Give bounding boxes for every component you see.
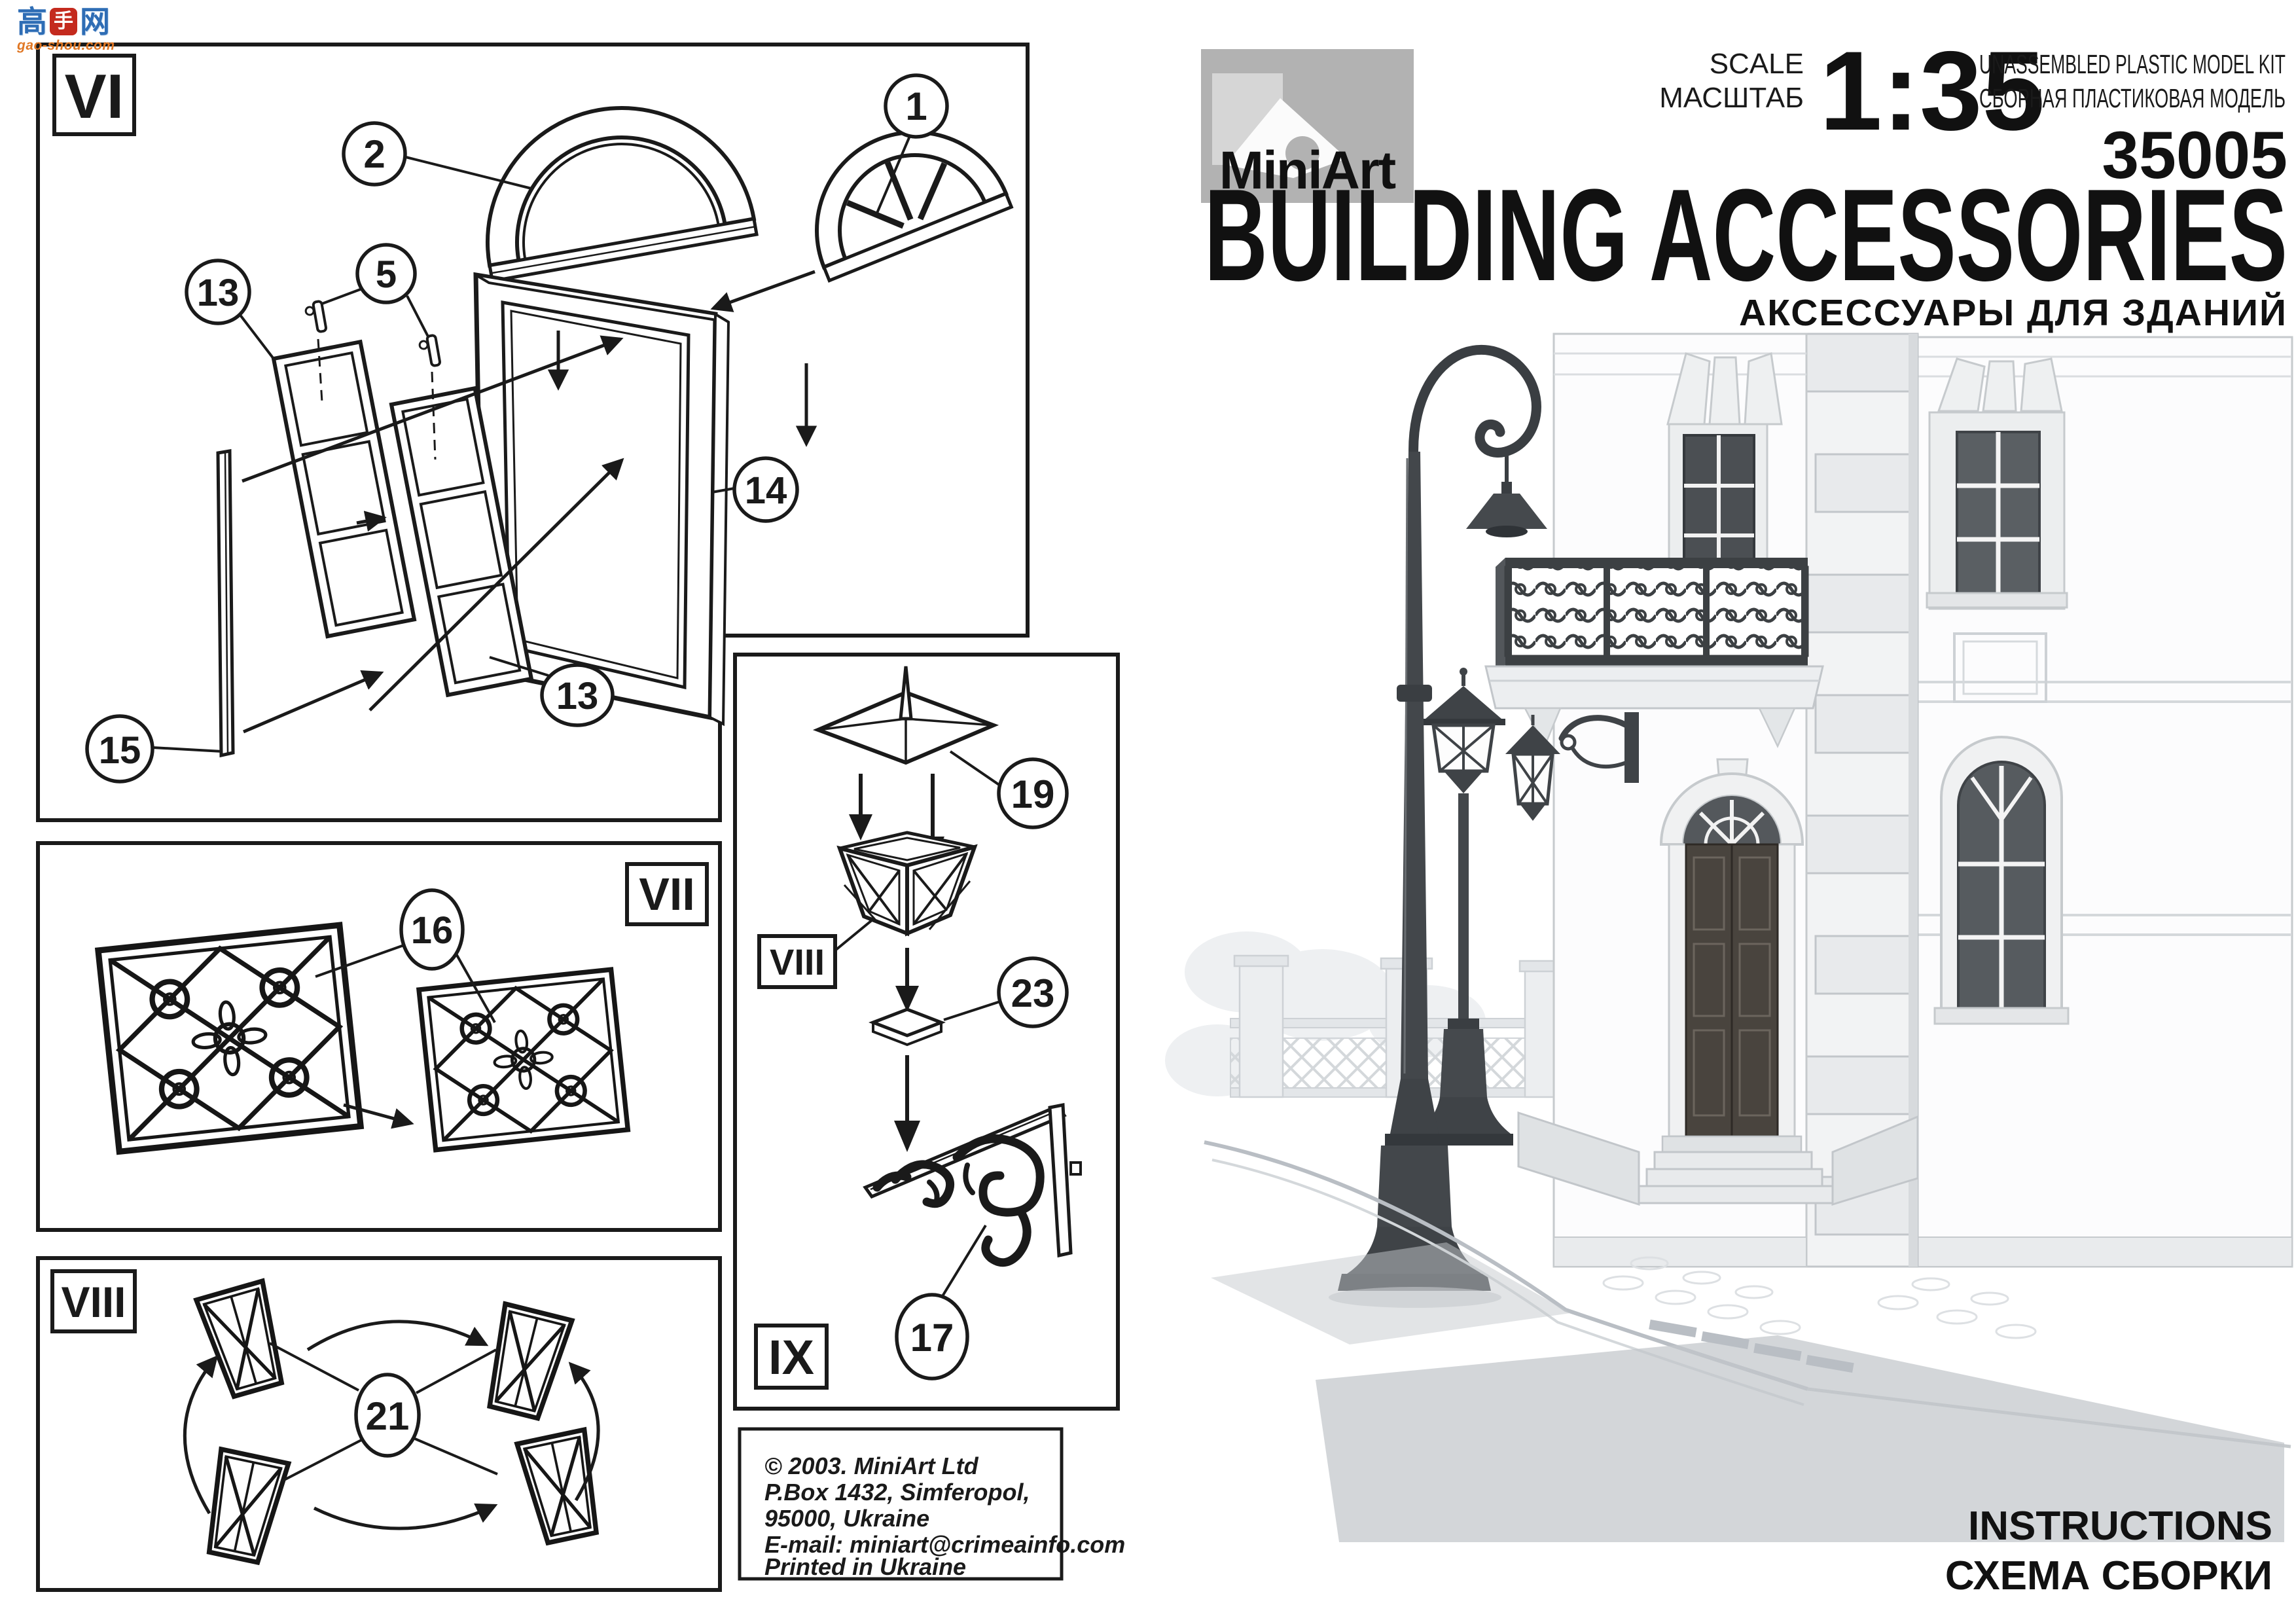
lantern-cage-assembly bbox=[840, 833, 975, 933]
watermark-char-left: 高 bbox=[17, 7, 47, 37]
copyright-line: 95000, Ukraine bbox=[764, 1505, 929, 1532]
leader-23 bbox=[944, 1001, 1000, 1020]
leader-19 bbox=[950, 751, 1000, 785]
callout-17: 17 bbox=[910, 1316, 954, 1360]
right-facade bbox=[1918, 337, 2292, 1267]
box-art-illustration bbox=[1165, 334, 2292, 1542]
upper-window-sill bbox=[1927, 593, 2067, 607]
scale-label-en: SCALE bbox=[1710, 48, 1804, 80]
front-facade-base bbox=[1554, 1237, 1806, 1267]
panel-ix-sub-label: VIII bbox=[770, 941, 825, 983]
watermark-domain: gao-shou.com bbox=[17, 39, 115, 52]
strip-part-15 bbox=[218, 451, 233, 755]
callout-2: 2 bbox=[363, 132, 385, 176]
instructions-ru: СХЕМА СБОРКИ bbox=[1945, 1553, 2272, 1598]
lantern-side-tl bbox=[196, 1281, 291, 1399]
panel-vi-label: VI bbox=[65, 62, 124, 132]
callout-15: 15 bbox=[99, 729, 141, 772]
garden-fence bbox=[1230, 956, 1568, 1097]
header: MiniArt SCALE МАСШТАБ 1:35 UNASSEMBLED P… bbox=[1201, 28, 2287, 334]
copyright-line: © 2003. MiniArt Ltd bbox=[764, 1453, 979, 1479]
panel-viii-label: VIII bbox=[61, 1278, 126, 1326]
copyright-line: Printed in Ukraine bbox=[764, 1553, 966, 1580]
lantern-side-tr bbox=[480, 1304, 572, 1420]
leader-viii-sub bbox=[835, 920, 872, 950]
window-pediment bbox=[1939, 359, 2062, 411]
instructions-caption: INSTRUCTIONS СХЕМА СБОРКИ bbox=[1945, 1504, 2272, 1598]
lantern-side-br bbox=[517, 1430, 605, 1545]
kit-type-en: UNASSEMBLED PLASTIC MODEL KIT bbox=[1979, 49, 2286, 79]
window-sash-part-13-left bbox=[274, 342, 414, 636]
latch-part-5-left bbox=[304, 301, 327, 334]
callout-1: 1 bbox=[905, 84, 927, 128]
callout-14: 14 bbox=[745, 469, 787, 512]
balcony-window-pediment bbox=[1668, 353, 1782, 424]
leader-17 bbox=[942, 1225, 986, 1296]
callout-5: 5 bbox=[376, 253, 397, 296]
pedestal-shadow bbox=[1329, 1287, 1501, 1308]
base-plate-part-23 bbox=[873, 1009, 941, 1045]
instruction-sheet: VI bbox=[0, 0, 2296, 1624]
callout-13b: 13 bbox=[556, 675, 599, 717]
arched-window bbox=[1935, 737, 2068, 1024]
entrance-door bbox=[1661, 759, 1803, 1152]
copyright-block: © 2003. MiniArt Ltd P.Box 1432, Simferop… bbox=[764, 1453, 1125, 1580]
scale-label-ru: МАСШТАБ bbox=[1659, 82, 1804, 114]
callout-13a: 13 bbox=[197, 272, 240, 314]
panel-ix-label: IX bbox=[768, 1330, 814, 1384]
watermark-logo: 高 手 网 gao-shou.com bbox=[17, 7, 115, 52]
watermark-char-right: 网 bbox=[80, 7, 110, 37]
drop-arrows-ix bbox=[849, 774, 944, 1152]
street-lamp bbox=[1338, 350, 1547, 1291]
instructions-en: INSTRUCTIONS bbox=[1968, 1504, 2272, 1549]
grille-part-16-left bbox=[98, 925, 361, 1151]
watermark-badge-icon: 手 bbox=[50, 8, 77, 35]
page-title-ru: АКСЕССУАРЫ ДЛЯ ЗДАНИЙ bbox=[1739, 291, 2287, 334]
copyright-line: P.Box 1432, Simferopol, bbox=[764, 1479, 1030, 1506]
grille-part-16-right bbox=[419, 969, 628, 1150]
right-facade-base bbox=[1918, 1237, 2292, 1267]
lantern-side-bl bbox=[200, 1449, 288, 1564]
callout-23: 23 bbox=[1011, 971, 1055, 1015]
latch-part-5-right bbox=[418, 335, 440, 368]
assembly-diagrams: VI bbox=[38, 45, 1125, 1590]
lantern-roof-part-19 bbox=[818, 666, 994, 763]
callout-19: 19 bbox=[1011, 772, 1055, 816]
callout-16: 16 bbox=[411, 909, 454, 952]
callout-21: 21 bbox=[366, 1394, 410, 1438]
kit-type-ru: СБОРНАЯ ПЛАСТИКОВАЯ МОДЕЛЬ bbox=[1979, 83, 2286, 113]
page-title: BUILDING ACCESSORIES bbox=[1204, 162, 2287, 308]
panel-vii-label: VII bbox=[639, 869, 695, 920]
